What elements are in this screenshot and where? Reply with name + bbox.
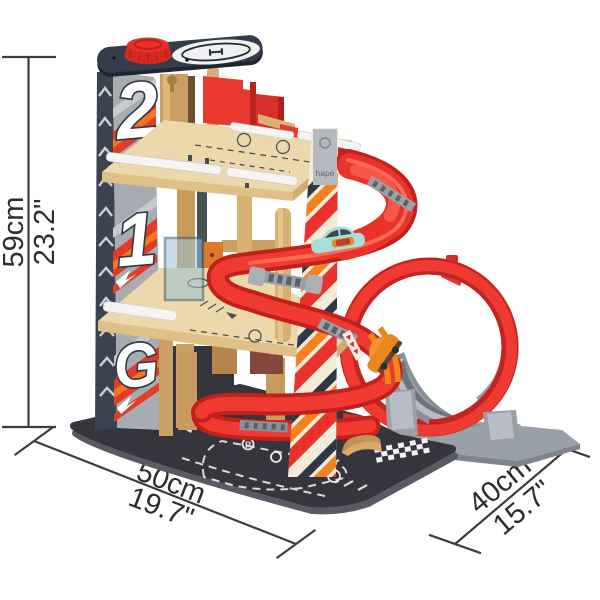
svg-text:hape: hape xyxy=(316,168,335,178)
svg-text:G: G xyxy=(111,328,161,401)
svg-text:23.2": 23.2" xyxy=(29,199,61,266)
svg-text:59cm: 59cm xyxy=(0,197,30,268)
svg-text:P: P xyxy=(245,440,251,450)
svg-text:1: 1 xyxy=(113,197,160,282)
